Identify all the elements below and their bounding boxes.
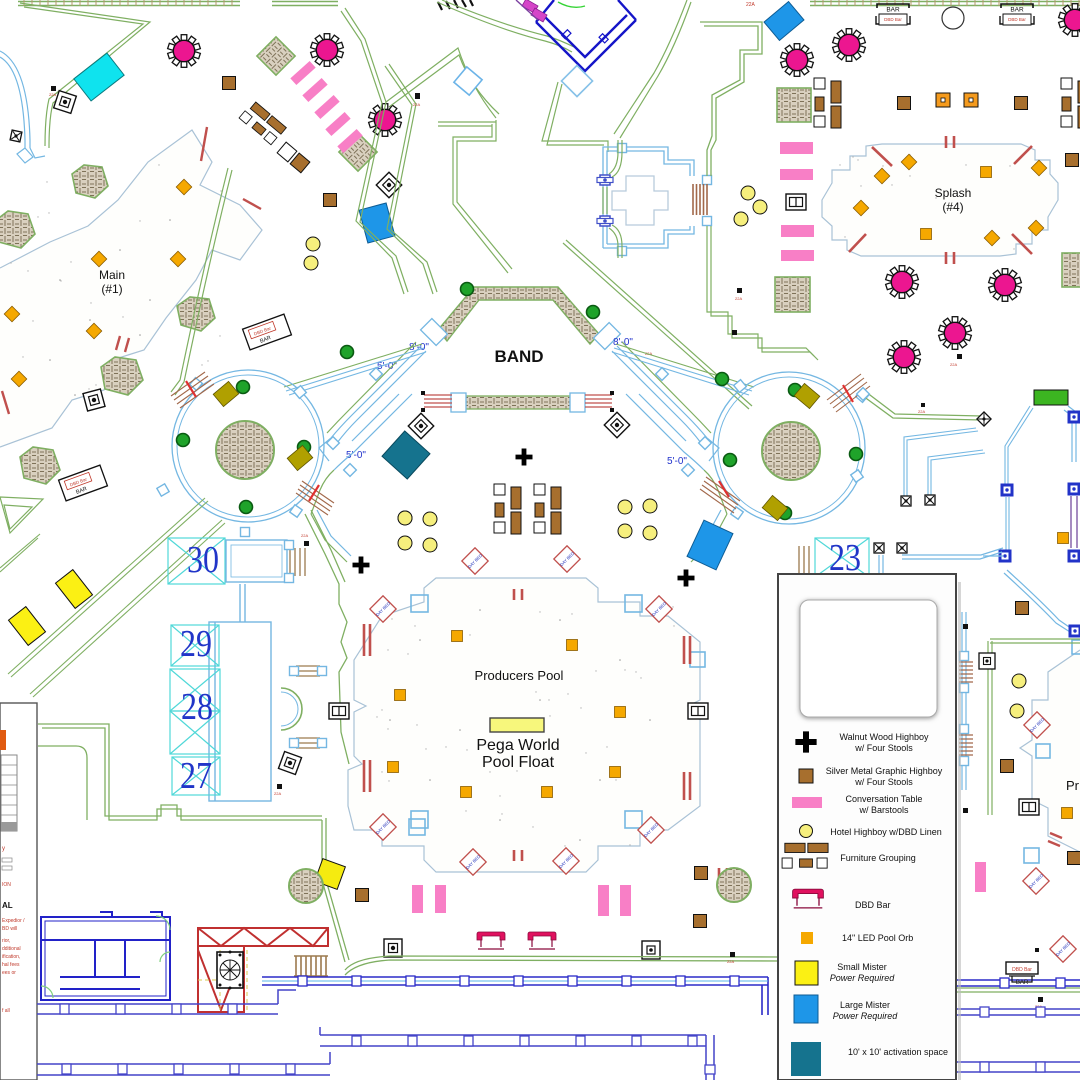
svg-text:(#1): (#1) xyxy=(101,282,122,296)
svg-text:22A: 22A xyxy=(413,102,420,107)
svg-text:22A: 22A xyxy=(727,959,734,964)
svg-text:BAND: BAND xyxy=(494,347,543,366)
svg-text:10' x 10' activation space: 10' x 10' activation space xyxy=(848,1047,948,1057)
svg-text:rior,: rior, xyxy=(2,938,10,944)
svg-text:Main: Main xyxy=(99,268,125,282)
svg-text:w/ Four Stools: w/ Four Stools xyxy=(854,777,913,787)
svg-text:Large Mister: Large Mister xyxy=(840,1000,890,1010)
svg-text:Conversation Table: Conversation Table xyxy=(846,794,923,804)
svg-text:BAR: BAR xyxy=(1016,980,1029,986)
svg-text:AL: AL xyxy=(2,901,13,910)
svg-text:22A: 22A xyxy=(918,409,925,414)
svg-text:14" LED Pool Orb: 14" LED Pool Orb xyxy=(842,933,913,943)
svg-text:w/ Barstools: w/ Barstools xyxy=(858,805,909,815)
svg-text:22A: 22A xyxy=(49,92,56,97)
svg-text:(#4): (#4) xyxy=(942,200,963,214)
svg-text:5'-0": 5'-0" xyxy=(667,456,687,467)
svg-text:29: 29 xyxy=(180,623,212,665)
svg-text:Furniture Grouping: Furniture Grouping xyxy=(840,853,916,863)
svg-text:ification,: ification, xyxy=(2,954,20,960)
svg-text:hal fees: hal fees xyxy=(2,962,20,968)
svg-text:22A: 22A xyxy=(950,362,957,367)
svg-text:BD will: BD will xyxy=(2,926,17,932)
svg-text:Splash: Splash xyxy=(935,186,972,200)
svg-text:f all: f all xyxy=(2,1008,10,1014)
svg-text:DBD Bar: DBD Bar xyxy=(1012,967,1032,973)
svg-text:Small Mister: Small Mister xyxy=(837,962,887,972)
svg-text:28: 28 xyxy=(181,686,213,728)
svg-text:Power Required: Power Required xyxy=(830,973,896,983)
svg-text:23: 23 xyxy=(829,537,861,579)
svg-text:dditional: dditional xyxy=(2,946,21,952)
svg-text:Power Required: Power Required xyxy=(833,1011,899,1021)
svg-text:22A: 22A xyxy=(274,791,281,796)
svg-text:27: 27 xyxy=(180,755,212,797)
svg-text:y: y xyxy=(2,846,5,852)
svg-text:Pega World: Pega World xyxy=(476,737,559,754)
svg-text:22A: 22A xyxy=(301,533,308,538)
svg-text:DBD Bar: DBD Bar xyxy=(855,900,891,910)
svg-text:ees or: ees or xyxy=(2,970,16,976)
svg-text:Walnut Wood Highboy: Walnut Wood Highboy xyxy=(839,732,929,742)
svg-text:Producers Pool: Producers Pool xyxy=(475,668,564,683)
svg-text:22A: 22A xyxy=(735,296,742,301)
svg-text:Pr: Pr xyxy=(1066,778,1080,793)
svg-text:30: 30 xyxy=(187,539,219,581)
svg-text:Hotel Highboy w/DBD Linen: Hotel Highboy w/DBD Linen xyxy=(830,827,942,837)
svg-text:Expedior /: Expedior / xyxy=(2,918,25,924)
svg-text:w/ Four Stools: w/ Four Stools xyxy=(854,743,913,753)
svg-text:Pool Float: Pool Float xyxy=(482,754,555,771)
svg-text:22A: 22A xyxy=(746,2,756,8)
svg-text:ION: ION xyxy=(2,882,11,888)
svg-text:Silver Metal Graphic Highboy: Silver Metal Graphic Highboy xyxy=(826,766,943,776)
